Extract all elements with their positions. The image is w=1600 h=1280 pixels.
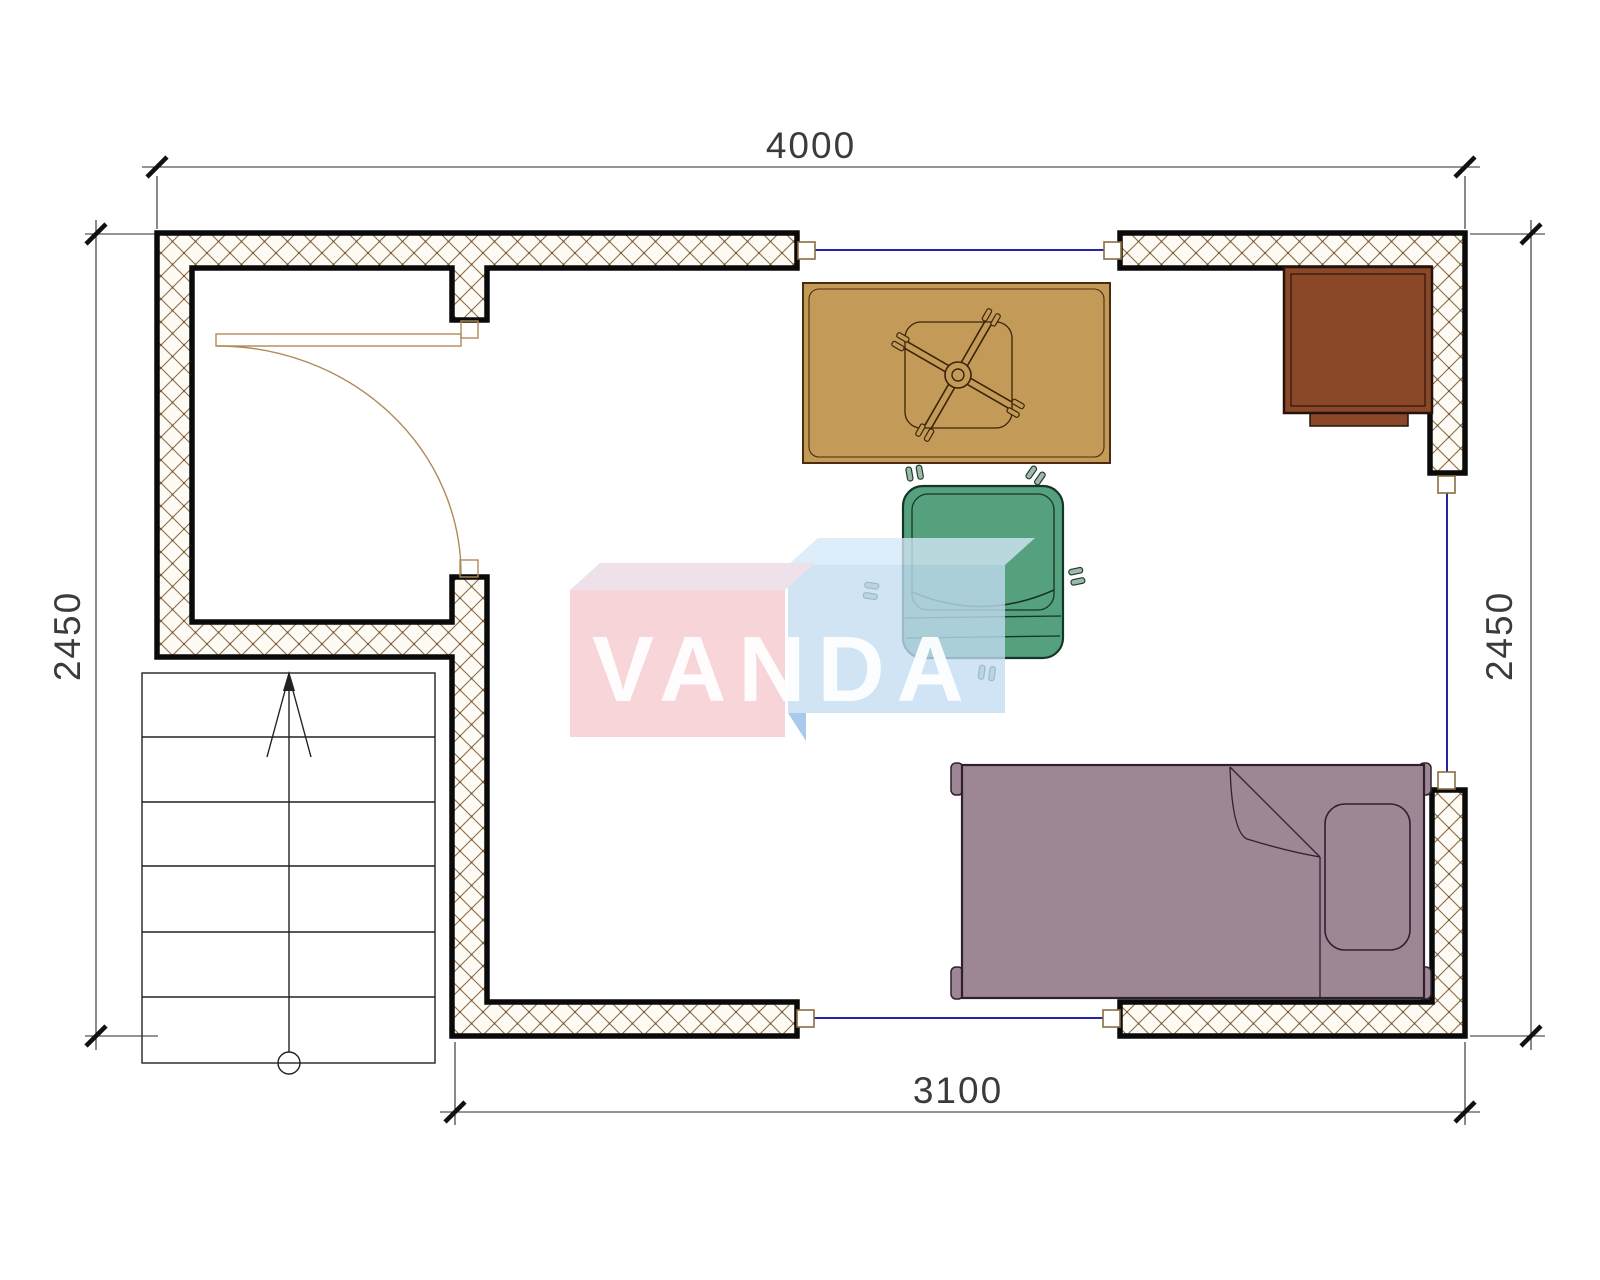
bed-pillow bbox=[1325, 804, 1410, 950]
bed-icon bbox=[951, 763, 1431, 999]
door-leaf bbox=[216, 334, 461, 346]
window-marker-bottom-left bbox=[797, 1010, 814, 1027]
dimension-right: 2450 bbox=[1470, 220, 1545, 1050]
floor-plan-drawing: VANDA 4000 2450 2450 3100 bbox=[0, 0, 1600, 1280]
watermark-blue-box-top bbox=[788, 538, 1035, 565]
door-swing-arc bbox=[217, 346, 461, 574]
window-marker-right-lower bbox=[1438, 772, 1455, 789]
dimension-top-label: 4000 bbox=[766, 125, 856, 166]
watermark-pink-box-top bbox=[570, 563, 815, 590]
dimension-right-label: 2450 bbox=[1479, 591, 1520, 681]
cabinet-icon bbox=[1284, 267, 1432, 426]
floor-plan-canvas: VANDA 4000 2450 2450 3100 bbox=[0, 0, 1600, 1280]
dimension-bottom-label: 3100 bbox=[913, 1070, 1003, 1111]
stairs-icon bbox=[142, 671, 435, 1074]
door-hinge-plate-upper bbox=[461, 321, 478, 338]
window-marker-top-left bbox=[798, 242, 815, 259]
watermark-text: VANDA bbox=[592, 617, 976, 721]
window-marker-right-upper bbox=[1438, 476, 1455, 493]
window-marker-bottom-right bbox=[1103, 1010, 1120, 1027]
dimension-top: 4000 bbox=[142, 125, 1480, 229]
window-marker-top-right bbox=[1104, 242, 1121, 259]
dimension-left-label: 2450 bbox=[47, 591, 88, 681]
dimension-bottom: 3100 bbox=[440, 1042, 1480, 1125]
door-icon bbox=[216, 321, 478, 577]
desk-icon bbox=[803, 275, 1110, 474]
